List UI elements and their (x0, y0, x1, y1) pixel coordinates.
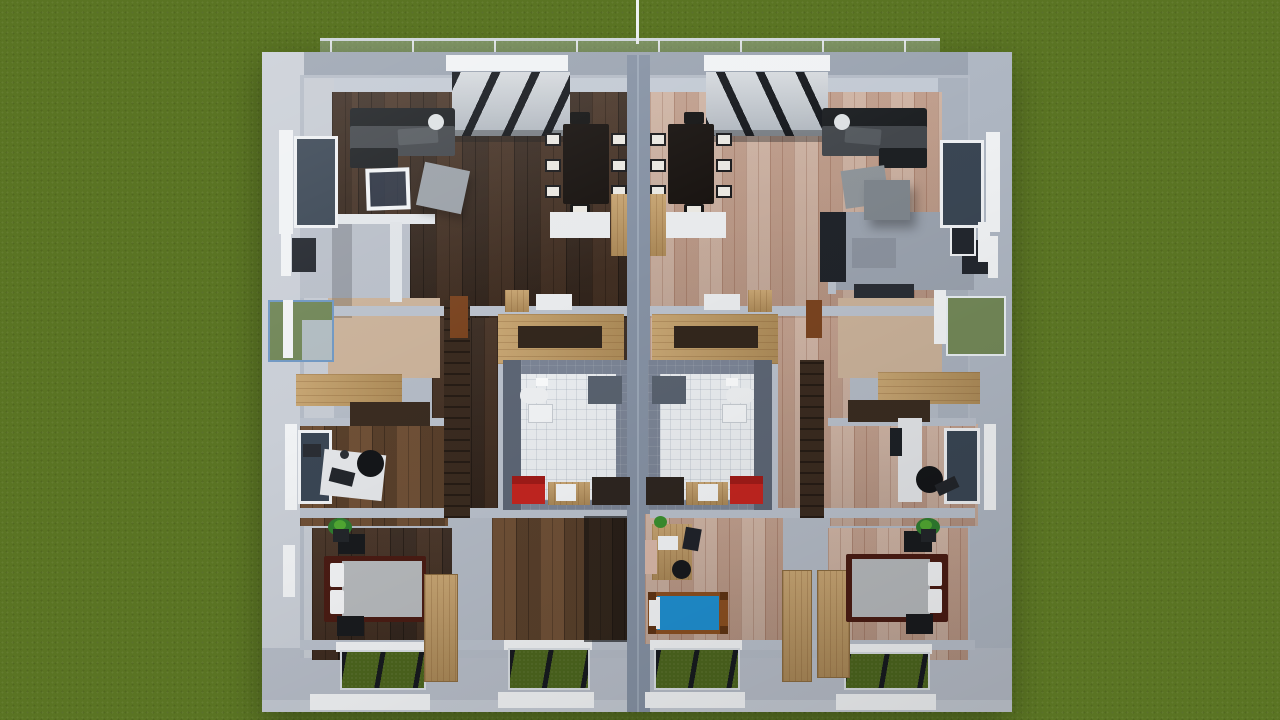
kids-chair (672, 560, 691, 579)
right-wall-window4-sill (984, 424, 996, 510)
right-bath-dresser (646, 477, 684, 505)
left-kitchen-appliance (536, 294, 572, 310)
left-office-printer (303, 444, 321, 457)
right-kitchen-cabinet (748, 290, 772, 312)
right-plant-pot (921, 529, 936, 542)
left-desk-lamp (340, 450, 349, 459)
kids-bed-post (648, 626, 656, 634)
left-top-window-sill (446, 55, 568, 71)
right-bath-sink (722, 404, 747, 423)
party-wall-gap (637, 55, 639, 712)
left-wall-window2-glass (292, 238, 316, 272)
left-dining-chair-head (570, 112, 590, 124)
railing-post (330, 40, 332, 52)
left-wall-window3-sill (283, 300, 293, 358)
right-entry-mat (852, 238, 896, 268)
left-bath-toilet (520, 388, 548, 403)
left-nightstand (337, 616, 364, 636)
right-wardrobe (782, 570, 812, 682)
railing-post (740, 40, 742, 52)
right-wall-window3-sill (934, 290, 946, 344)
right-kitchen-island (666, 212, 726, 238)
front-window2-glass (508, 648, 590, 690)
left-bed-pillow (330, 590, 344, 614)
left-room-door (450, 296, 468, 338)
right-entry-window-sill (978, 222, 990, 262)
right-bath-ceiling-light (726, 378, 738, 386)
left-office-chair (357, 450, 384, 477)
left-kitchen-island (550, 212, 610, 238)
railing-post (494, 40, 496, 52)
left-dining-table (563, 124, 609, 204)
left-wardrobe (424, 574, 458, 682)
right-dining-chair (716, 185, 732, 198)
right-side-table (864, 180, 910, 220)
front-window4-glass (844, 652, 930, 690)
right-vanity-sink (698, 484, 718, 501)
front-window1-glass (340, 650, 426, 690)
right-bed-mattress (852, 559, 930, 617)
floorplan-3d-viewport[interactable] (0, 0, 1280, 720)
right-nightstand (906, 614, 933, 634)
left-dining-chair (545, 185, 561, 198)
left-dining-chair (545, 133, 561, 146)
right-bed-pillow (928, 589, 942, 613)
left-wall-window2-sill (281, 234, 291, 276)
right-bath-toilet (726, 388, 754, 403)
front-window1-sill (310, 694, 430, 710)
right-top-window-sill (704, 55, 830, 71)
front-window4-sill (836, 694, 936, 710)
front-window3-glass (654, 648, 740, 690)
kids-bed-post (720, 592, 728, 600)
right-sofa-side-lamp (834, 114, 850, 130)
left-entry-wall-v (390, 222, 402, 302)
right-dining-chair (716, 159, 732, 172)
right-wall-window1-glass (940, 140, 984, 228)
left-pantry-column (611, 194, 627, 256)
right-sofa-blanket (844, 126, 881, 145)
railing-post (412, 40, 414, 52)
left-wall-window5-sill (283, 545, 295, 597)
kids-bed-post (648, 592, 656, 600)
kids-bed-post (720, 626, 728, 634)
right-dining-table (668, 124, 714, 204)
railing-post (658, 40, 660, 52)
left-sofa-chaise (350, 148, 398, 168)
railing-post (822, 40, 824, 52)
right-dining-chair-head (684, 112, 704, 124)
left-bath-shower (588, 376, 622, 404)
left-red-cabinet-top (512, 476, 545, 484)
railing-post (904, 40, 906, 52)
left-bath-ceiling-light (536, 378, 548, 386)
left-dining-chair (611, 159, 627, 172)
left-tall-windows (452, 72, 570, 136)
left-kitchen-cabinet (505, 290, 529, 312)
left-bath-dresser (592, 477, 630, 505)
kids-bed-mattress (657, 596, 719, 630)
right-entry-window (950, 226, 976, 256)
left-wall-window1-sill (279, 130, 293, 234)
left-side-table (416, 162, 470, 215)
left-dining-chair (545, 159, 561, 172)
right-sofa-chaise (879, 148, 927, 168)
right-red-cabinet-top (730, 476, 763, 484)
left-bed-pillow (330, 563, 344, 587)
right-dining-chair (650, 133, 666, 146)
left-vanity-sink (556, 484, 576, 501)
left-kitchen-inset (518, 326, 602, 348)
center-flag-pole (636, 0, 639, 44)
right-kitchen-inset (674, 326, 758, 348)
right-dining-chair (650, 159, 666, 172)
front-window3-sill (645, 692, 745, 708)
left-terrace-glass-railing (268, 300, 334, 362)
right-bath-shower (652, 376, 686, 404)
right-tall-windows (706, 72, 828, 136)
kids-shelf (645, 540, 657, 574)
right-entry-cabinet-dark (820, 212, 846, 282)
front-window2-sill (498, 692, 594, 708)
kids-bed-pillow (649, 597, 660, 629)
left-wall-window4-sill (285, 424, 297, 510)
left-dresser-dark (350, 402, 430, 426)
right-dark-wood-wall (800, 360, 824, 518)
railing-post (576, 40, 578, 52)
right-pantry-column (650, 194, 666, 256)
right-wall-window1-sill (986, 132, 1000, 232)
left-dining-chair (611, 133, 627, 146)
kids-plant (654, 516, 667, 528)
right-wall-window4-glass (944, 428, 980, 504)
right-entry-bench-dark (854, 284, 914, 298)
left-bed-mattress (342, 561, 422, 617)
left-wall-window1-glass (294, 136, 338, 228)
right-room-door (806, 300, 822, 338)
kids-desk-paper (658, 536, 678, 550)
right-kitchen-appliance (704, 294, 740, 310)
right-terrace-glass-railing (946, 296, 1006, 356)
left-bottom-room-shadow (584, 516, 627, 642)
right-dining-chair (716, 133, 732, 146)
left-sofa-side-lamp (428, 114, 444, 130)
left-bath-sink (528, 404, 553, 423)
right-desk-monitor (890, 428, 902, 456)
right-bed-pillow (928, 562, 942, 586)
left-coffee-table-glass (365, 167, 410, 211)
left-plant-pot (333, 529, 349, 542)
